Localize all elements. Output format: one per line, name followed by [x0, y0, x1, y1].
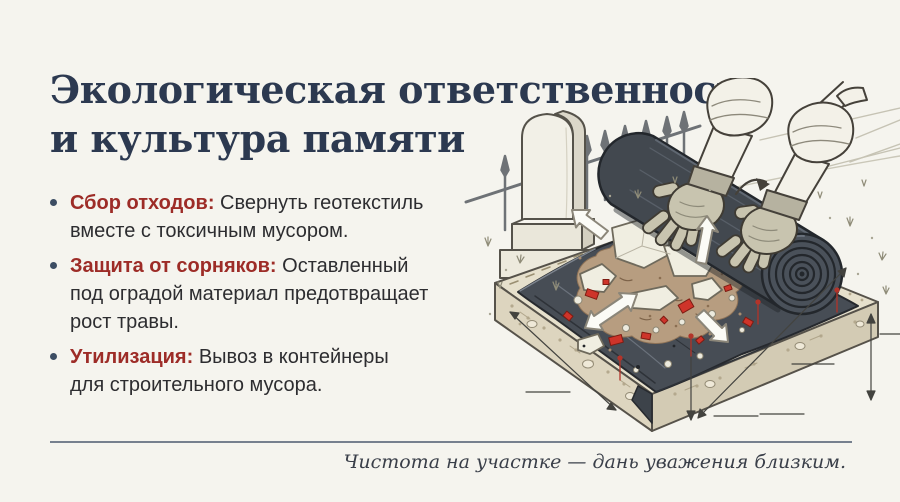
- footer-quote: Чистота на участке — дань уважения близк…: [344, 451, 846, 473]
- bullet-label: Сбор отходов:: [70, 192, 214, 214]
- bullet-item-waste-collection: Сбор отходов: Свернуть геотекстиль вмест…: [50, 189, 470, 245]
- bullet-item-disposal: Утилизация: Вывоз в контейнеры для строи…: [50, 343, 470, 399]
- bullet-label: Утилизация:: [70, 346, 193, 368]
- rolled-sleeve: [707, 78, 772, 136]
- bullet-content: Сбор отходов: Свернуть геотекстиль вмест…: [70, 189, 423, 245]
- bullet-list: Сбор отходов: Свернуть геотекстиль вмест…: [50, 189, 470, 406]
- bullet-item-weed-protection: Защита от сорняков: Оставленный под огра…: [50, 252, 470, 336]
- geotextile-removal-illustration: [460, 78, 900, 460]
- bullet-content: Защита от сорняков: Оставленный под огра…: [70, 252, 428, 336]
- rolled-sleeve: [788, 102, 853, 162]
- bullet-dot: [50, 199, 57, 206]
- bullet-label: Защита от сорняков:: [70, 255, 277, 277]
- bullet-dot: [50, 353, 57, 360]
- footer-divider: [50, 441, 852, 443]
- bullet-content: Утилизация: Вывоз в контейнеры для строи…: [70, 343, 389, 399]
- bullet-dot: [50, 262, 57, 269]
